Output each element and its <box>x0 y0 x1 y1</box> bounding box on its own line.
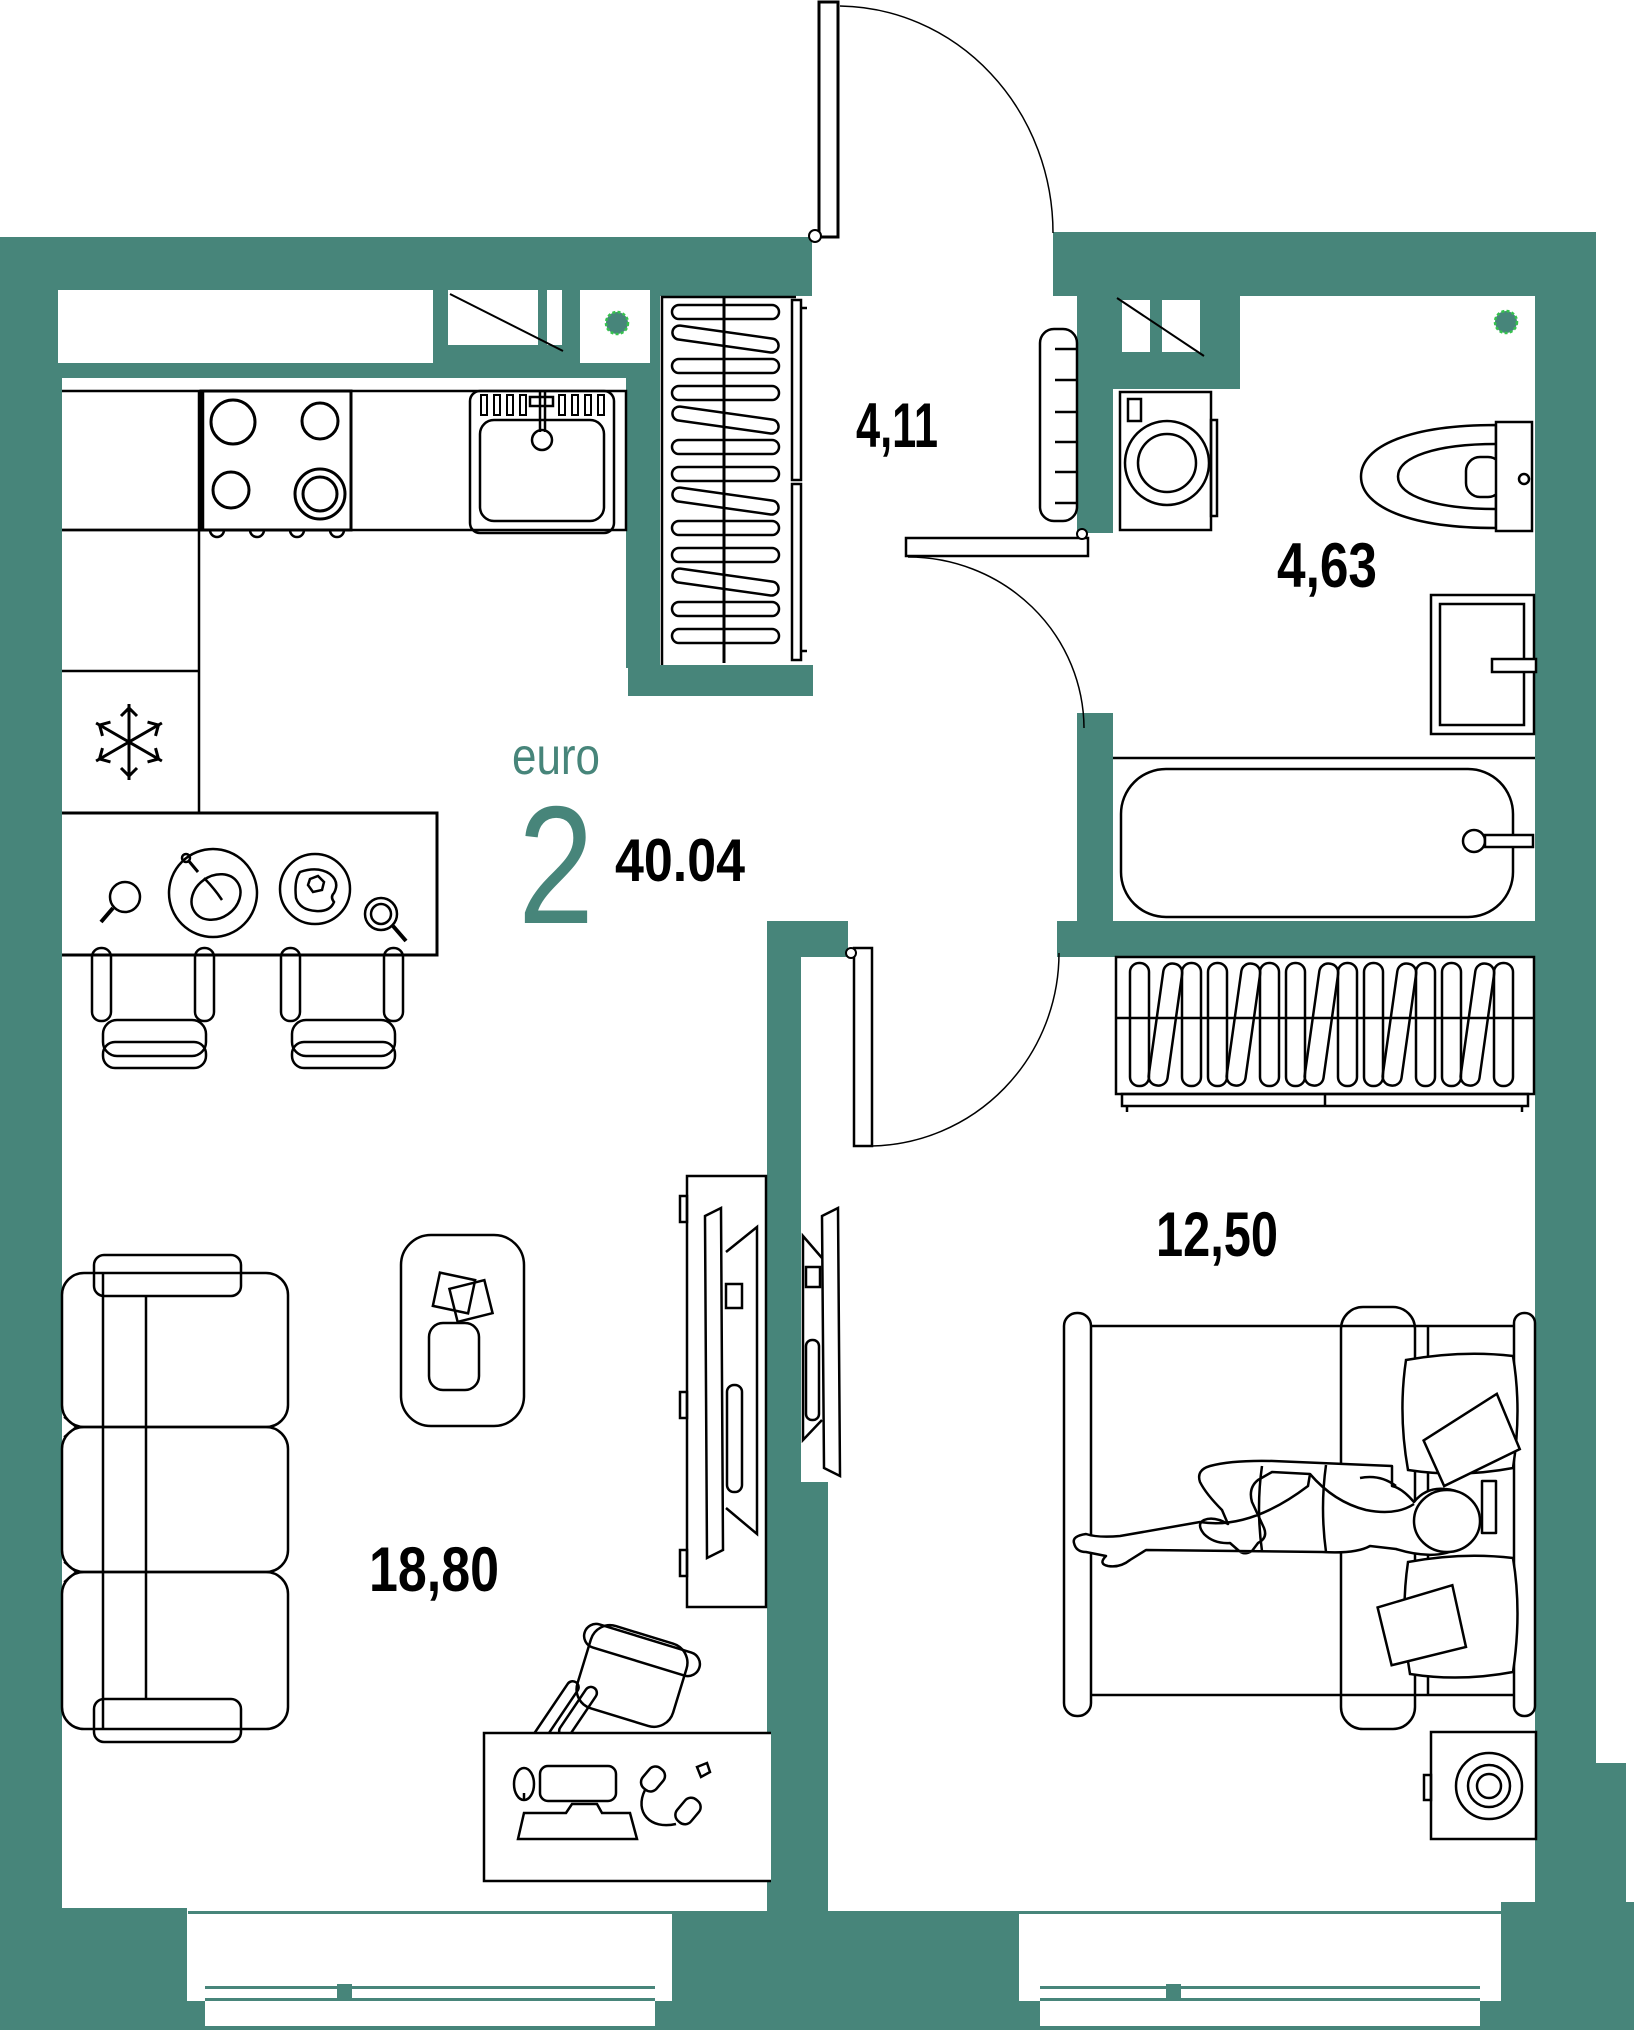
svg-text:12,50: 12,50 <box>1156 1200 1278 1270</box>
svg-text:4,63: 4,63 <box>1277 531 1377 601</box>
svg-text:4,11: 4,11 <box>856 391 938 461</box>
svg-text:2: 2 <box>518 771 594 959</box>
svg-text:40.04: 40.04 <box>615 827 746 894</box>
svg-text:18,80: 18,80 <box>369 1535 499 1605</box>
